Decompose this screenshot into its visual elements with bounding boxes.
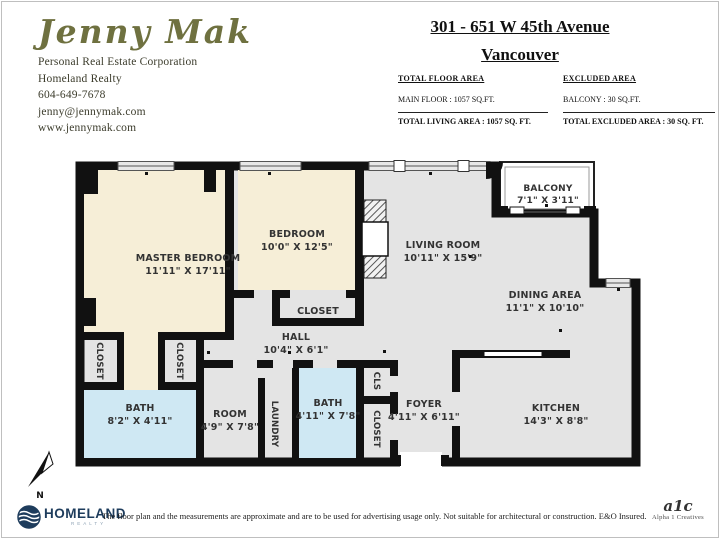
master-bedroom-label: MASTER BEDROOM bbox=[136, 253, 241, 264]
room-label: ROOM bbox=[213, 409, 247, 420]
foyer-label: FOYER bbox=[406, 399, 442, 410]
living-room-label: LIVING ROOM bbox=[406, 240, 481, 251]
kitchen-dims: 14'3" X 8'8" bbox=[523, 416, 588, 427]
master-bedroom-dims: 11'11" X 17'11" bbox=[145, 266, 231, 277]
dining-area-dims: 11'1" X 10'10" bbox=[506, 303, 585, 314]
living-room-dims: 10'11" X 15'9" bbox=[404, 253, 483, 264]
bath-main-dims: 8'2" X 4'11" bbox=[107, 416, 172, 427]
laundry-label: LAUNDRY bbox=[269, 401, 279, 448]
hall-label: HALL bbox=[282, 332, 310, 343]
creator-name: Alpha 1 Creatives bbox=[638, 514, 718, 521]
bedroom-closet-label: CLOSET bbox=[297, 306, 339, 317]
creator-logo: a1c bbox=[638, 498, 718, 514]
brokerage-subtitle: REALTY bbox=[71, 521, 106, 526]
disclaimer-text: The floor plan and the measurements are … bbox=[102, 511, 647, 521]
dining-area-label: DINING AREA bbox=[509, 290, 582, 301]
bath-main-label: BATH bbox=[125, 403, 154, 414]
master-passage-floor bbox=[124, 332, 158, 390]
balcony-label: BALCONY bbox=[523, 184, 573, 194]
floorplan-sheet: Jenny Mak Personal Real Estate Corporati… bbox=[0, 0, 720, 539]
closet-left-a-label: CLOSET bbox=[94, 342, 104, 380]
fireplace-column bbox=[362, 200, 388, 278]
foyer-dims: 4'11" X 6'11" bbox=[388, 412, 460, 423]
entry-door-opening bbox=[393, 452, 449, 471]
bath-second-label: BATH bbox=[313, 398, 342, 409]
bath-second-dims: 4'11" X 7'8" bbox=[295, 411, 360, 422]
kitchen-counter bbox=[484, 352, 542, 357]
bedroom-label: BEDROOM bbox=[269, 229, 325, 240]
room-dims: 4'9" X 7'8" bbox=[201, 422, 259, 433]
bedroom-dims: 10'0" X 12'5" bbox=[261, 242, 333, 253]
foyer-closet-label: CLOSET bbox=[371, 410, 381, 448]
master-bedroom-floor bbox=[84, 170, 225, 332]
kitchen-label: KITCHEN bbox=[532, 403, 580, 414]
cls-label: CLS bbox=[371, 372, 381, 390]
balcony-dims: 7'1" X 3'11" bbox=[517, 196, 579, 206]
hall-dims: 10'4" X 6'1" bbox=[263, 345, 328, 356]
north-arrow: N bbox=[28, 452, 53, 501]
north-label: N bbox=[36, 491, 44, 501]
closet-left-b-label: CLOSET bbox=[174, 342, 184, 380]
homeland-globe-icon bbox=[16, 504, 42, 530]
creator-credit: a1c Alpha 1 Creatives bbox=[638, 498, 718, 521]
floorplan-drawing: MASTER BEDROOM 11'11" X 17'11" BEDROOM 1… bbox=[0, 0, 720, 539]
